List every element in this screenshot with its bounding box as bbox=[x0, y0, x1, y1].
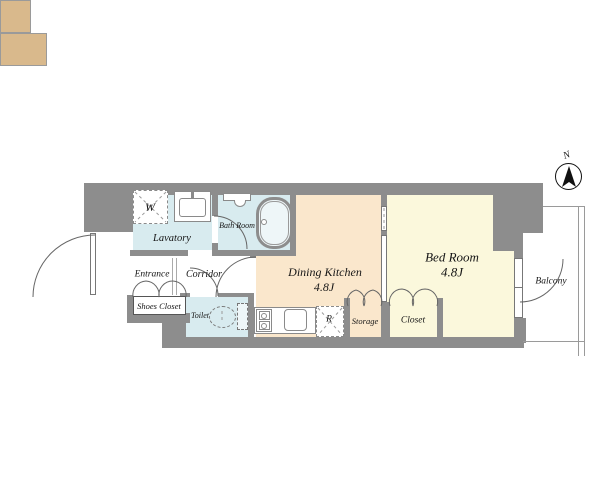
wall-partition-bottom bbox=[381, 302, 390, 337]
wall-corridor-frame bbox=[250, 253, 256, 258]
wall-balcony-door-block bbox=[514, 318, 526, 343]
bed-room-label: Bed Room bbox=[425, 251, 479, 264]
entrance-step-line-2 bbox=[176, 258, 177, 295]
corridor-label: Corridor bbox=[186, 270, 222, 280]
compass-north-label: N bbox=[562, 150, 572, 162]
stove-burner-bottom-ring bbox=[261, 323, 267, 329]
washer-space-label: W bbox=[145, 201, 155, 213]
dining-kitchen-floor-upper bbox=[296, 195, 381, 255]
bed-room-size: 4.8J bbox=[441, 266, 463, 279]
shoes-closet-label: Shoes Closet bbox=[137, 302, 181, 311]
lavatory-faucet-icon bbox=[191, 192, 194, 199]
kitchen-sink-icon bbox=[284, 309, 307, 331]
storage-label: Storage bbox=[352, 317, 378, 326]
closet-label: Closet bbox=[401, 316, 425, 326]
sliding-door-panel-a bbox=[381, 206, 387, 231]
toilet-label: Toilet bbox=[191, 312, 209, 320]
balcony-window bbox=[514, 258, 523, 318]
entrance-label: Entrance bbox=[135, 270, 170, 280]
wall-lav-bath-lower bbox=[212, 243, 218, 250]
floor-plan: W Lavatory Bath Room Entrance Corridor S… bbox=[0, 0, 616, 479]
wall-bottom bbox=[162, 337, 524, 348]
balcony-right-line-outer bbox=[584, 206, 585, 356]
storage-box bbox=[0, 0, 31, 33]
balcony-bottom-line bbox=[523, 341, 585, 342]
dining-kitchen-label: Dining Kitchen bbox=[288, 266, 362, 278]
wall-lav-bath-upper bbox=[212, 195, 218, 216]
wall-lavatory-bottom bbox=[130, 250, 188, 256]
dining-kitchen-size: 4.8J bbox=[314, 281, 334, 293]
balcony-right-line-inner bbox=[578, 206, 579, 356]
refrigerator-space-label: R bbox=[326, 315, 332, 325]
entrance-step-line-1 bbox=[172, 258, 173, 295]
entrance-door-swing bbox=[33, 235, 95, 297]
bathtub-drain-icon bbox=[261, 219, 267, 225]
lavatory-sink-basin-icon bbox=[179, 198, 206, 217]
bath-room-label: Bath Room bbox=[219, 222, 255, 230]
closet-box bbox=[0, 33, 47, 66]
wall-corner-block bbox=[493, 183, 543, 233]
stove-burner-top-ring bbox=[261, 313, 267, 319]
compass-icon bbox=[555, 163, 582, 190]
balcony-label: Balcony bbox=[535, 277, 566, 287]
wall-toilet-top-stub bbox=[186, 293, 190, 297]
wall-toilet-top bbox=[218, 293, 254, 297]
sliding-door-panel-b bbox=[381, 235, 387, 302]
shoes-closet-bifold-doors bbox=[133, 281, 186, 297]
lavatory-label: Lavatory bbox=[153, 234, 191, 245]
wall-top-left-block bbox=[84, 183, 133, 232]
toilet-tank-icon bbox=[237, 303, 248, 330]
wall-storage-left bbox=[344, 298, 350, 337]
toilet-bowl-icon bbox=[209, 306, 236, 328]
entrance-door-leaf bbox=[90, 233, 96, 295]
wall-partition-top bbox=[381, 195, 387, 206]
wall-closet-right bbox=[437, 298, 443, 337]
wall-corner-step bbox=[493, 233, 523, 251]
